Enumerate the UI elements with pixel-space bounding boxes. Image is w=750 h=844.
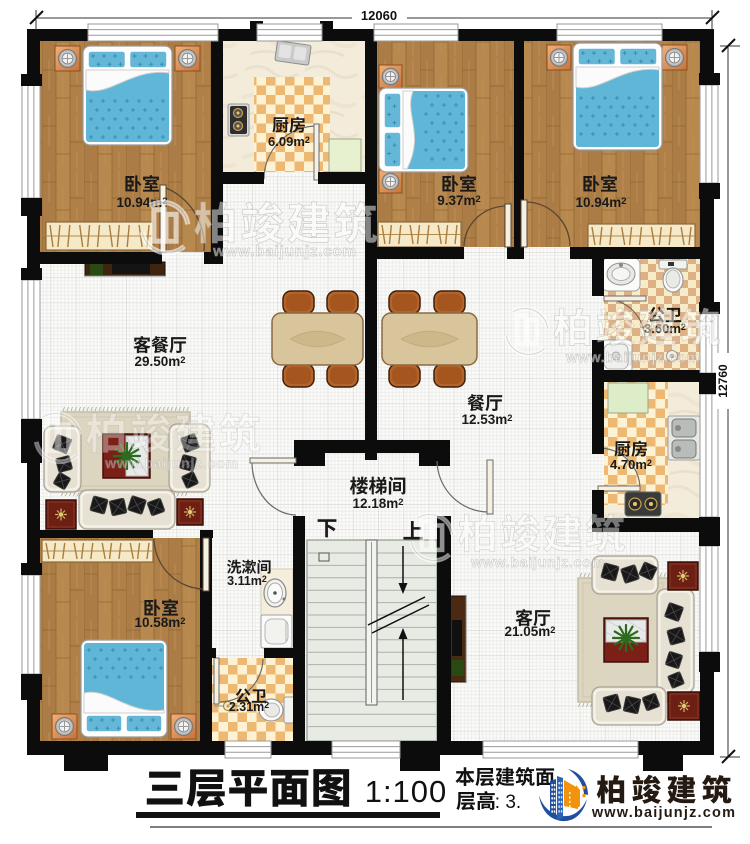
svg-text:6.09m2: 6.09m2 [268,134,310,149]
svg-text:12760: 12760 [716,364,730,398]
svg-text:9.37m2: 9.37m2 [437,193,481,208]
svg-text:12.53m2: 12.53m2 [461,412,512,427]
svg-text:www.baijunjz.com: www.baijunjz.com [104,455,239,471]
svg-text:: 3.: : 3. [495,792,521,813]
svg-text:12060: 12060 [361,8,397,23]
svg-text:www.baijunjz.com: www.baijunjz.com [212,243,357,260]
svg-text:1:100: 1:100 [365,774,448,809]
svg-text:2.31m2: 2.31m2 [229,700,269,714]
svg-text:10.58m2: 10.58m2 [134,615,185,630]
svg-text:12.18m2: 12.18m2 [352,496,403,511]
svg-text:21.05m2: 21.05m2 [504,624,555,639]
svg-text:www.baijunjz.com: www.baijunjz.com [470,554,605,570]
svg-text:29.50m2: 29.50m2 [134,354,185,369]
svg-text:www.baijunjz.com: www.baijunjz.com [565,349,700,365]
svg-text:3.11m2: 3.11m2 [227,574,267,588]
svg-text:4.70m2: 4.70m2 [610,457,652,472]
svg-text:10.94m2: 10.94m2 [575,195,626,210]
svg-text:www.baijunjz.com: www.baijunjz.com [591,805,736,821]
